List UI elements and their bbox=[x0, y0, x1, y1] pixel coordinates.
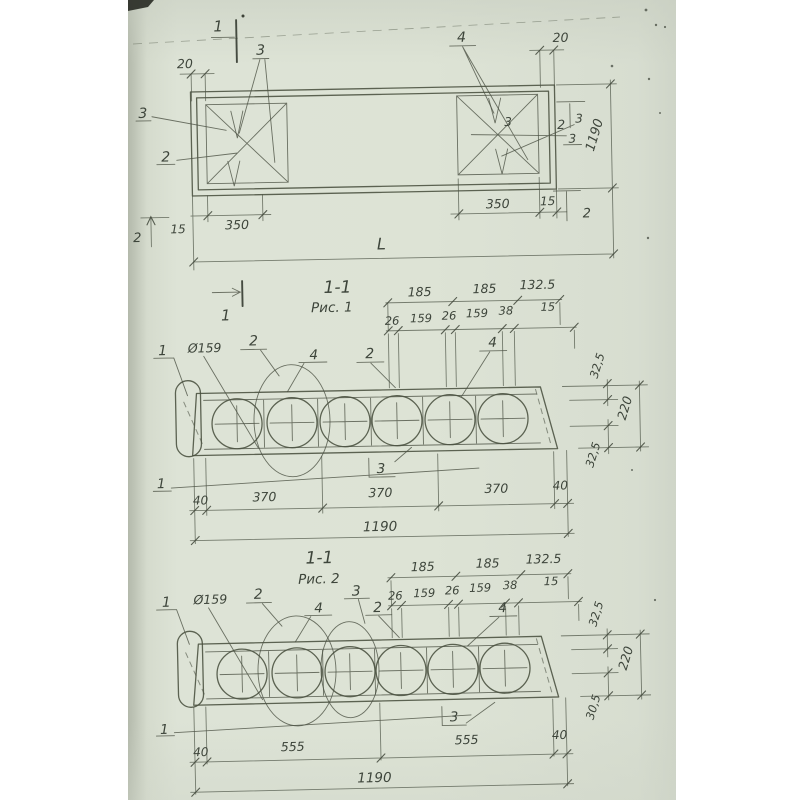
fig1-callout-diameter: Ø159 bbox=[187, 340, 222, 356]
dim-length: L bbox=[377, 234, 386, 253]
fig2-callout-rebar: 1 bbox=[160, 722, 169, 738]
fig1-bottom-dim: 370 bbox=[368, 485, 392, 500]
pos-right: 2 bbox=[583, 206, 592, 221]
fig2-bottom-dim: 555 bbox=[455, 732, 479, 748]
fig1-detail-dim: 159 bbox=[410, 311, 432, 325]
fig1-detail-dim: 15 bbox=[540, 300, 555, 314]
section-marker-bottom-label: 1 bbox=[221, 306, 231, 324]
fig1-callout-mesh-a: 2 bbox=[249, 333, 258, 349]
fig1-callout-rebar: 1 bbox=[157, 476, 166, 492]
fig1-bottom-dim: 40 bbox=[193, 493, 209, 507]
fig1-callout-boxed: 3 bbox=[376, 461, 385, 477]
fig2-bottom-dim: 555 bbox=[281, 739, 305, 755]
callout-inner-right: 3 bbox=[504, 115, 512, 129]
fig1-span-dim: 185 bbox=[472, 281, 496, 296]
fig2-span-dim: 185 bbox=[476, 555, 500, 571]
fig2-span-dim: 185 bbox=[411, 559, 435, 575]
fig2-bottom-dim: 40 bbox=[193, 745, 209, 759]
fig1-detail-dim: 38 bbox=[498, 303, 513, 317]
fig2-detail-dim: 159 bbox=[469, 580, 491, 594]
callout-top-right: 4 bbox=[457, 30, 466, 46]
fig2-detail-dim: 26 bbox=[388, 588, 403, 602]
callout-right-b: 3 bbox=[575, 111, 583, 125]
fig2-title: 1-1 bbox=[305, 548, 333, 569]
fig1-span-dim: 132.5 bbox=[519, 277, 555, 293]
dim-edge-right: 15 bbox=[540, 194, 556, 208]
fig1-bottom-dim: 370 bbox=[252, 489, 276, 504]
fig2-callout-a: 4 bbox=[314, 600, 323, 616]
pos-left: 2 bbox=[133, 231, 142, 246]
fig2-span-dim: 132.5 bbox=[525, 551, 561, 567]
scanned-drawing-page: 1 1 20 20 3 4 3 2 3 2 3 3 1190 350 15 2 … bbox=[0, 0, 800, 800]
fig1-caption: Рис. 1 bbox=[311, 300, 353, 317]
fig2-total-dim: 1190 bbox=[357, 770, 392, 787]
dim-mesh-right: 350 bbox=[486, 196, 510, 211]
fig1-callout-b: 4 bbox=[488, 335, 497, 351]
fig1-callout-a: 4 bbox=[309, 347, 318, 363]
dim-edge-left: 15 bbox=[170, 222, 186, 236]
fig2-callout-hole: 3 bbox=[352, 583, 361, 599]
fig2-detail-dim: 38 bbox=[503, 578, 518, 592]
drawing-canvas: 1 1 20 20 3 4 3 2 3 2 3 3 1190 350 15 2 … bbox=[0, 0, 800, 800]
fig1-total-dim: 1190 bbox=[363, 519, 398, 536]
fig2-callout-mesh-b: 2 bbox=[373, 600, 382, 616]
section-marker-top-label: 1 bbox=[213, 17, 223, 35]
dim-offset-left: 20 bbox=[177, 56, 193, 71]
fig1-title: 1-1 bbox=[323, 278, 351, 299]
callout-right-a: 2 bbox=[557, 117, 565, 132]
callout-right-c: 3 bbox=[568, 132, 576, 146]
fig2-callout-diameter: Ø159 bbox=[192, 591, 227, 607]
fig1-detail-dim: 26 bbox=[385, 314, 400, 328]
callout-top-left: 3 bbox=[256, 43, 265, 59]
callout-left-a: 3 bbox=[138, 106, 147, 122]
fig2-callout-mesh-a: 2 bbox=[254, 587, 263, 603]
fig1-bottom-dim: 370 bbox=[484, 481, 508, 496]
fig2-callout-loop: 1 bbox=[162, 595, 171, 611]
dim-offset-right: 20 bbox=[552, 30, 568, 45]
fig1-span-dim: 185 bbox=[407, 284, 431, 299]
fig2-detail-dim: 26 bbox=[445, 583, 460, 597]
fig1-bottom-dim: 40 bbox=[553, 478, 569, 492]
fig1-callout-mesh-b: 2 bbox=[365, 346, 374, 362]
fig1-detail-dim: 159 bbox=[466, 306, 488, 320]
fig2-bottom-dim: 40 bbox=[552, 728, 568, 742]
fig2-callout-b: 4 bbox=[498, 600, 507, 616]
callout-left-b: 2 bbox=[161, 149, 170, 165]
fig2-caption: Рис. 2 bbox=[298, 571, 340, 588]
dim-mesh-left: 350 bbox=[225, 217, 249, 232]
fig1-detail-dim: 26 bbox=[442, 309, 457, 323]
fig2-detail-dim: 159 bbox=[413, 586, 435, 600]
fig2-callout-boxed: 3 bbox=[450, 709, 459, 725]
fig2-detail-dim: 15 bbox=[544, 574, 559, 588]
fig1-callout-loop: 1 bbox=[158, 343, 167, 359]
